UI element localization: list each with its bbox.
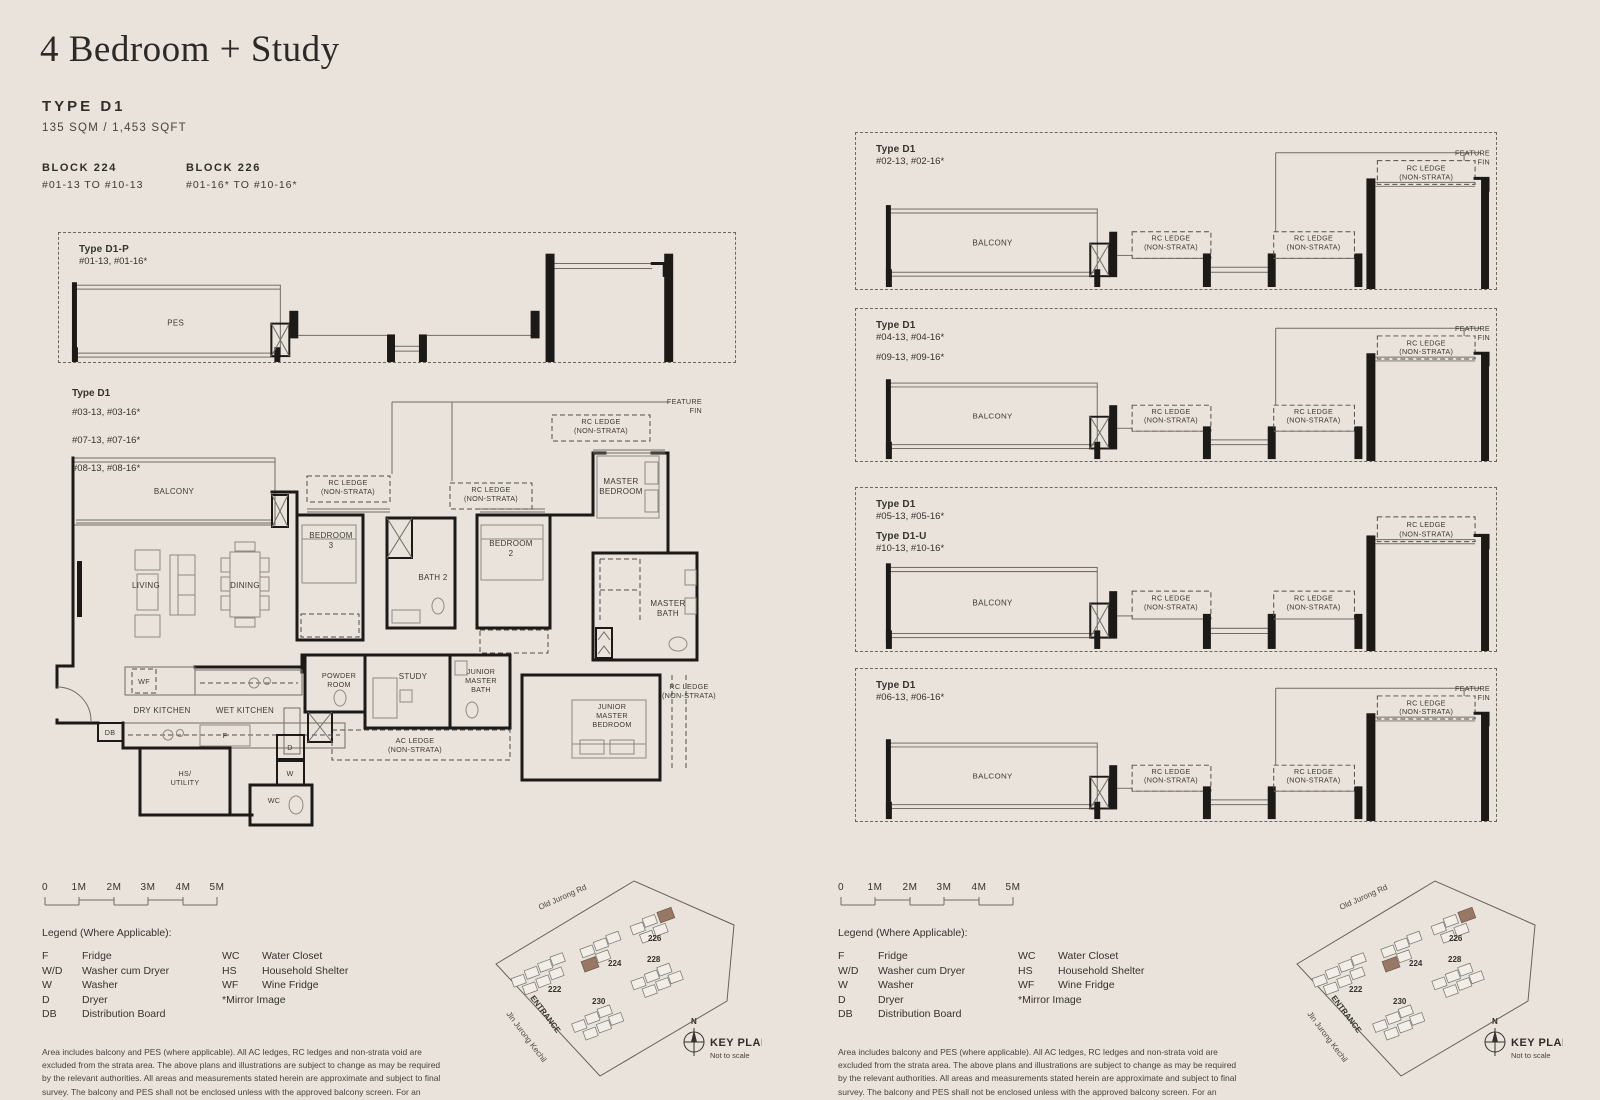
keyplan-title: KEY PLAN [710, 1037, 762, 1049]
legend: FFridge W/DWasher cum Dryer WWasher DDry… [838, 949, 1258, 1022]
balcony-label: BALCONY [972, 412, 1013, 421]
db-label: DB [105, 728, 116, 737]
block-cluster-230 [1371, 1002, 1427, 1043]
scale-bar-labels: 0 1M 2M 3M 4M 5M [838, 882, 1258, 894]
dryer-label: D [287, 743, 293, 752]
floorplan-page: 4 Bedroom + Study TYPE D1 135 SQM / 1,45… [0, 0, 1600, 1100]
variant-strip-drawing: BALCONY RC LEDGE(NON-STRATA) RC LEDGE(NO… [856, 669, 1496, 821]
rc-ledge-label: RC LEDGE(NON-STRATA) [1144, 409, 1198, 425]
legend-row: DBDistribution Board [42, 1007, 192, 1022]
site-map: Old Jurong Rd Jln Jurong Kechil ENTRANCE [496, 881, 734, 1076]
road-label-left: Jln Jurong Kechil [1305, 1010, 1349, 1064]
bedroom3-label: BEDROOM3 [309, 531, 352, 550]
highlighted-unit-226 [657, 907, 675, 922]
scale-tick-label: 2M [903, 882, 918, 893]
variant-units: #01-13, #01-16* [79, 256, 147, 268]
keyplan-subtitle: Not to scale [710, 1051, 750, 1060]
block-number-230: 230 [592, 997, 606, 1006]
site-map: Old Jurong Rd Jln Jurong Kechil ENTRANCE [1297, 881, 1535, 1076]
keyplan-subtitle: Not to scale [1511, 1051, 1551, 1060]
north-label: N [691, 1017, 697, 1026]
wet-kitchen-label: WET KITCHEN [216, 706, 274, 715]
balcony-label: BALCONY [973, 239, 1014, 248]
living-label: LIVING [132, 581, 160, 590]
living-furniture [135, 550, 195, 637]
variant-type: Type D1-P [79, 244, 147, 256]
road-label-top: Old Jurong Rd [537, 883, 588, 912]
dry-kitchen-label: DRY KITCHEN [133, 706, 190, 715]
d1p-strip-drawing: PES [59, 233, 735, 362]
block-units: #01-13 TO #10-13 [42, 179, 143, 191]
page-title: 4 Bedroom + Study [40, 28, 340, 71]
hs-utility-label: HS/UTILITY [171, 769, 200, 787]
block-name: BLOCK 226 [186, 162, 298, 174]
variant-label: Type D1 #04-13, #04-16* #09-13, #09-16* [876, 320, 944, 364]
block-226: BLOCK 226 #01-16* TO #10-16* [186, 162, 298, 191]
rc-ledge-label: RC LEDGE(NON-STRATA) [1399, 341, 1453, 357]
mirror-note: *Mirror Image [1018, 993, 1144, 1008]
feature-fin-label: FEATUREFIN [1455, 326, 1490, 342]
block-number-230: 230 [1393, 997, 1407, 1006]
highlighted-unit-224 [1382, 957, 1400, 972]
balcony-label: BALCONY [154, 487, 195, 496]
rc-ledge-label: RC LEDGE(NON-STRATA) [1399, 165, 1453, 182]
variant-units: #05-13, #05-16* [876, 511, 944, 523]
block-number-226: 226 [1449, 934, 1463, 943]
legend-row: WWasher [42, 978, 192, 993]
plan-variant-02: Type D1 #02-13, #02-16* BALCONY RC LEDGE… [855, 132, 1497, 290]
legend-row: WFWine Fridge [1018, 978, 1144, 993]
rc-ledge-label: RC LEDGE(NON-STRATA) [1287, 409, 1341, 425]
highlighted-unit-226 [1458, 907, 1476, 922]
legend-row: FFridge [42, 949, 192, 964]
scale-tick-label: 1M [72, 882, 87, 893]
block-number-228: 228 [1448, 955, 1462, 964]
scale-tick-label: 5M [210, 882, 225, 893]
road-label-left: Jln Jurong Kechil [504, 1010, 548, 1064]
legend-row: FFridge [838, 949, 988, 964]
main-floorplan-drawing: BALCONY LIVING DINING BEDROOM3 BATH 2 BE… [40, 378, 720, 848]
road-label-top: Old Jurong Rd [1338, 883, 1389, 912]
scale-bar-labels: 0 1M 2M 3M 4M 5M [42, 882, 462, 894]
variant-units: #09-13, #09-16* [876, 352, 944, 364]
variant-label: Type D1-P #01-13, #01-16* [79, 244, 147, 268]
compass-icon: N [684, 1017, 704, 1056]
junior-master-bedroom-label: JUNIORMASTERBEDROOM [592, 702, 631, 729]
study-label: STUDY [399, 672, 428, 681]
scale-tick-label: 0 [42, 882, 48, 893]
scale-tick-label: 4M [972, 882, 987, 893]
scale-tick-label: 2M [107, 882, 122, 893]
variant-type: Type D1 [876, 144, 944, 156]
legend-row: W/DWasher cum Dryer [838, 964, 988, 979]
rc-ledge-label: RC LEDGE(NON-STRATA) [1399, 520, 1453, 538]
bath2-label: BATH 2 [418, 573, 447, 582]
scale-bar [838, 894, 1018, 908]
highlighted-unit-224 [581, 957, 599, 972]
variant-units: #10-13, #10-16* [876, 543, 944, 555]
junior-master-bath-label: JUNIORMASTERBATH [465, 667, 497, 694]
rc-ledge-label-3: RC LEDGE(NON-STRATA) [574, 417, 628, 435]
rc-ledge-label: RC LEDGE(NON-STRATA) [1144, 593, 1198, 611]
legend-row: HSHousehold Shelter [222, 964, 348, 979]
balcony-label: BALCONY [972, 598, 1012, 607]
variant-label: Type D1 #06-13, #06-16* [876, 680, 944, 704]
legend-title: Legend (Where Applicable): [838, 927, 1258, 939]
fridge-label: F [223, 731, 228, 740]
washer-label: W [286, 769, 293, 778]
feature-fin-label: FEATUREFIN [1455, 686, 1490, 702]
block-224: BLOCK 224 #01-13 TO #10-13 [42, 162, 143, 191]
block-number-224: 224 [608, 959, 622, 968]
scale-tick-label: 1M [868, 882, 883, 893]
dining-label: DINING [230, 581, 260, 590]
block-cluster-230 [570, 1002, 626, 1043]
wc-label: WC [268, 796, 281, 805]
rc-ledge-label-2: RC LEDGE(NON-STRATA) [464, 485, 518, 503]
disclaimer-text: Area includes balcony and PES (where app… [838, 1046, 1238, 1100]
bedroom2-label: BEDROOM2 [489, 539, 532, 558]
feature-fin-label: FEATUREFIN [1455, 150, 1490, 167]
plan-variant-04-09: Type D1 #04-13, #04-16* #09-13, #09-16* … [855, 308, 1497, 462]
unit-area-label: 135 SQM / 1,453 SQFT [42, 122, 187, 134]
variant-type: Type D1 [876, 320, 944, 332]
block-number-224: 224 [1409, 959, 1423, 968]
pes-label: PES [167, 319, 184, 328]
legend-row: DDryer [42, 993, 192, 1008]
legend: FFridge W/DWasher cum Dryer WWasher DDry… [42, 949, 462, 1022]
variant-units: #06-13, #06-16* [876, 692, 944, 704]
legend-row: W/DWasher cum Dryer [42, 964, 192, 979]
legend-row: WFWine Fridge [222, 978, 348, 993]
variant-label: Type D1 #02-13, #02-16* [876, 144, 944, 168]
rc-ledge-label-1: RC LEDGE(NON-STRATA) [321, 478, 375, 496]
legend-row: WWasher [838, 978, 988, 993]
scale-bar [42, 894, 222, 908]
block-cluster-228 [629, 961, 684, 1001]
scale-tick-label: 3M [937, 882, 952, 893]
rc-ledge-label: RC LEDGE(NON-STRATA) [1287, 235, 1341, 252]
key-plan-right: Old Jurong Rd Jln Jurong Kechil ENTRANCE [1283, 868, 1563, 1090]
keyplan-title: KEY PLAN [1511, 1037, 1563, 1049]
block-units: #01-16* TO #10-16* [186, 179, 298, 191]
block-number-222: 222 [1349, 985, 1363, 994]
key-plan-left: Old Jurong Rd Jln Jurong Kechil ENTRANCE [482, 868, 762, 1090]
variant-type: Type D1 [876, 499, 944, 511]
block-number-222: 222 [548, 985, 562, 994]
plan-type-d1p: Type D1-P #01-13, #01-16* [58, 232, 736, 363]
master-bath-label: MASTERBATH [650, 599, 685, 618]
rc-ledge-label: RC LEDGE(NON-STRATA) [1144, 769, 1198, 785]
variant-type: Type D1 [876, 680, 944, 692]
compass-icon: N [1485, 1017, 1505, 1056]
rc-ledge-label: RC LEDGE(NON-STRATA) [1287, 593, 1341, 611]
variant-type: Type D1-U [876, 531, 944, 543]
plan-variant-06: Type D1 #06-13, #06-16* BALCONY RC LEDGE… [855, 668, 1497, 822]
block-name: BLOCK 224 [42, 162, 143, 174]
disclaimer-text: Area includes balcony and PES (where app… [42, 1046, 442, 1100]
legend-row: WCWater Closet [222, 949, 348, 964]
feature-fin-label: FEATUREFIN [667, 397, 702, 415]
rc-ledge-label: RC LEDGE(NON-STRATA) [1287, 769, 1341, 785]
ac-ledge-label: AC LEDGE(NON-STRATA) [388, 736, 442, 754]
bedroom3-area [297, 476, 390, 640]
plan-variant-05-10: Type D1 #05-13, #05-16* Type D1-U #10-13… [855, 487, 1497, 652]
wf-label: WF [138, 677, 150, 686]
legend-row: DDryer [838, 993, 988, 1008]
scale-tick-label: 3M [141, 882, 156, 893]
block-cluster-222 [1310, 953, 1373, 998]
balcony-label: BALCONY [972, 772, 1013, 781]
bedroom2-area [450, 483, 550, 653]
variant-units: #04-13, #04-16* [876, 332, 944, 344]
legend-row: DBDistribution Board [838, 1007, 988, 1022]
block-cluster-228 [1430, 961, 1485, 1001]
block-cluster-222 [509, 953, 572, 998]
variant-label: Type D1 #05-13, #05-16* Type D1-U #10-13… [876, 499, 944, 555]
variant-units: #02-13, #02-16* [876, 156, 944, 168]
rc-ledge-label-right: RC LEDGE(NON-STRATA) [662, 682, 716, 700]
variant-strip-drawing: BALCONY RC LEDGE(NON-STRATA) RC LEDGE(NO… [856, 309, 1496, 461]
scale-tick-label: 5M [1006, 882, 1021, 893]
junior-master-bedroom-area [522, 675, 660, 780]
entrance-label: ENTRANCE [1329, 994, 1363, 1035]
shelter-hatch [272, 492, 297, 527]
legend-title: Legend (Where Applicable): [42, 927, 462, 939]
legend-row: WCWater Closet [1018, 949, 1144, 964]
powder-room-label: POWDERROOM [322, 671, 356, 689]
rc-ledge-label: RC LEDGE(NON-STRATA) [1144, 235, 1198, 252]
master-bedroom-label: MASTERBEDROOM [599, 477, 642, 496]
unit-type-label: TYPE D1 [42, 98, 126, 115]
block-number-228: 228 [647, 955, 661, 964]
scale-tick-label: 4M [176, 882, 191, 893]
info-block-left: 0 1M 2M 3M 4M 5M Legend (Where Applicabl… [42, 882, 462, 1100]
variant-strip-drawing: BALCONY RC LEDGE(NON-STRATA) RC LEDGE(NO… [856, 133, 1496, 289]
rc-ledge-label: RC LEDGE(NON-STRATA) [1399, 701, 1453, 717]
entrance-label: ENTRANCE [528, 994, 562, 1035]
info-block-right: 0 1M 2M 3M 4M 5M Legend (Where Applicabl… [838, 882, 1258, 1100]
variant-strip-drawing: BALCONY RC LEDGE(NON-STRATA) RC LEDGE(NO… [856, 488, 1496, 651]
north-label: N [1492, 1017, 1498, 1026]
block-number-226: 226 [648, 934, 662, 943]
scale-tick-label: 0 [838, 882, 844, 893]
legend-row: HSHousehold Shelter [1018, 964, 1144, 979]
mirror-note: *Mirror Image [222, 993, 348, 1008]
